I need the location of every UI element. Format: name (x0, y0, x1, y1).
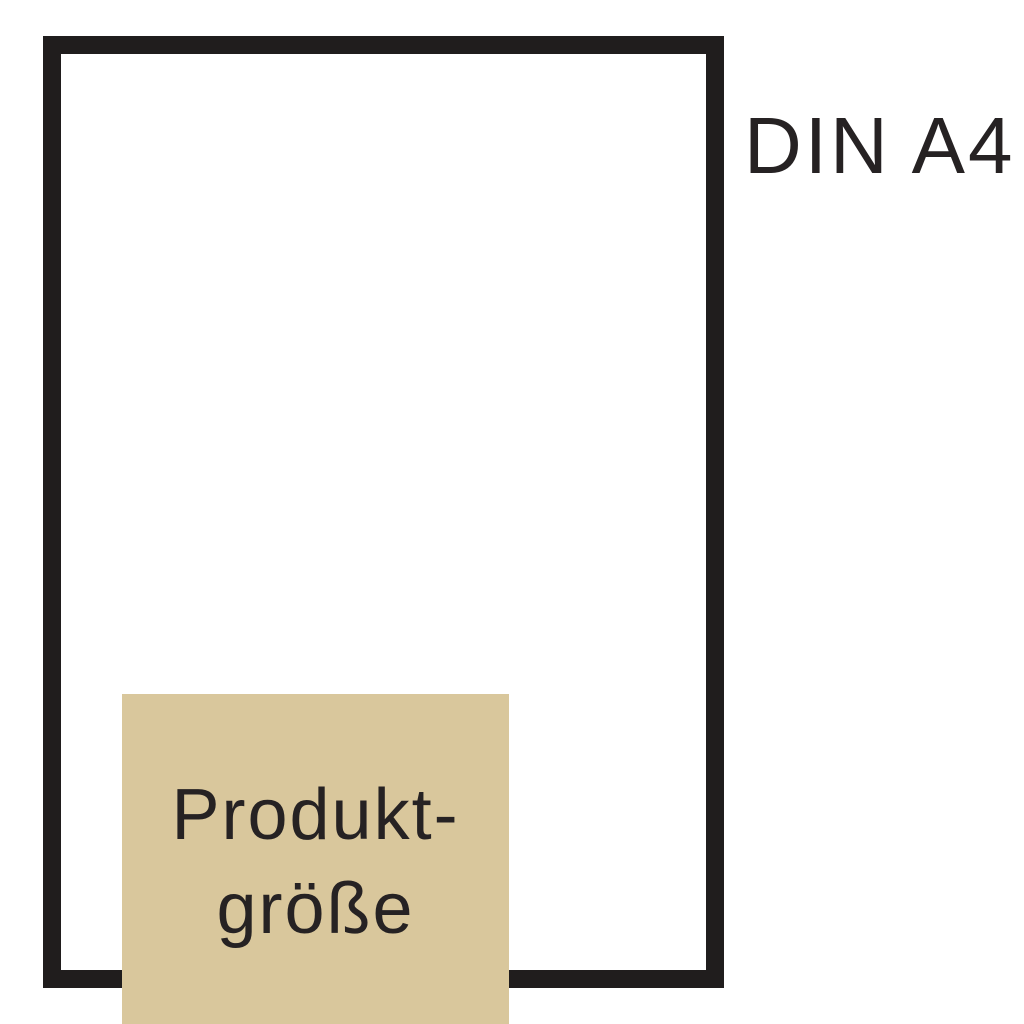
diagram-canvas: Produkt- größe DIN A4 (0, 0, 1024, 1024)
product-size-label-line1: Produkt- (171, 768, 459, 862)
din-a4-sheet-outline: Produkt- größe (43, 36, 724, 988)
din-a4-label: DIN A4 (744, 106, 1015, 186)
product-size-area: Produkt- größe (122, 694, 509, 1024)
product-size-label-line2: größe (216, 862, 414, 956)
